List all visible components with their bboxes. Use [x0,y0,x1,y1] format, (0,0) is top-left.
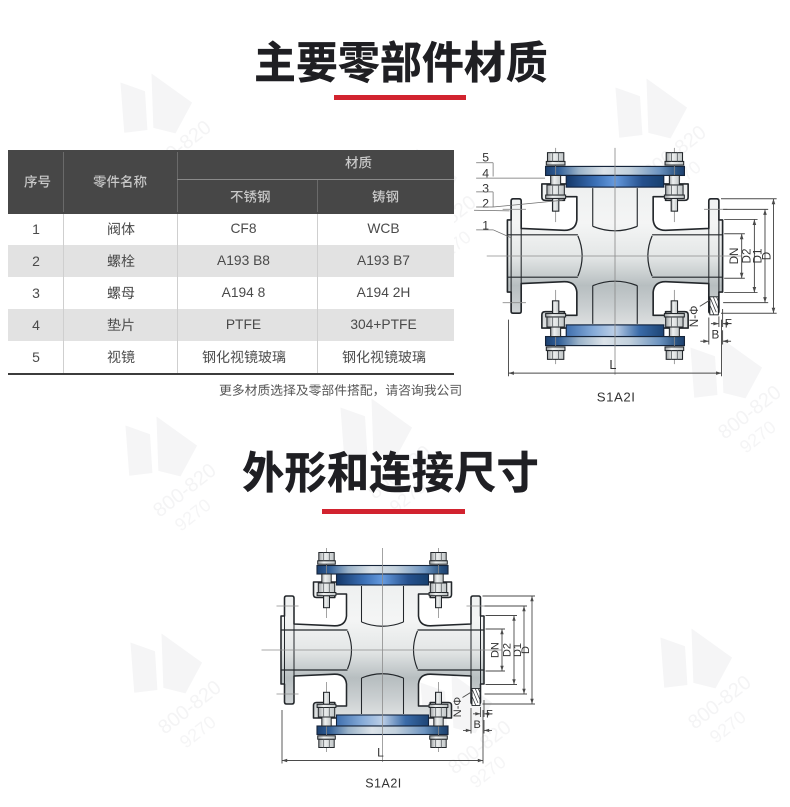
svg-text:L: L [609,357,616,372]
svg-text:D: D [760,252,773,260]
svg-text:N-Φ: N-Φ [452,697,464,718]
svg-text:D: D [520,646,532,654]
svg-text:DN: DN [490,642,502,658]
svg-text:DN: DN [728,248,741,265]
svg-text:S1A2I: S1A2I [365,777,402,791]
svg-text:S1A2I: S1A2I [597,390,636,405]
svg-text:3: 3 [482,181,489,195]
svg-text:2: 2 [482,196,489,210]
svg-text:L: L [377,746,384,760]
svg-text:B: B [474,719,481,731]
svg-text:F: F [486,708,493,720]
svg-text:N-Φ: N-Φ [688,306,701,328]
svg-text:B: B [711,328,719,341]
svg-text:F: F [725,317,732,330]
svg-text:1: 1 [482,219,489,233]
